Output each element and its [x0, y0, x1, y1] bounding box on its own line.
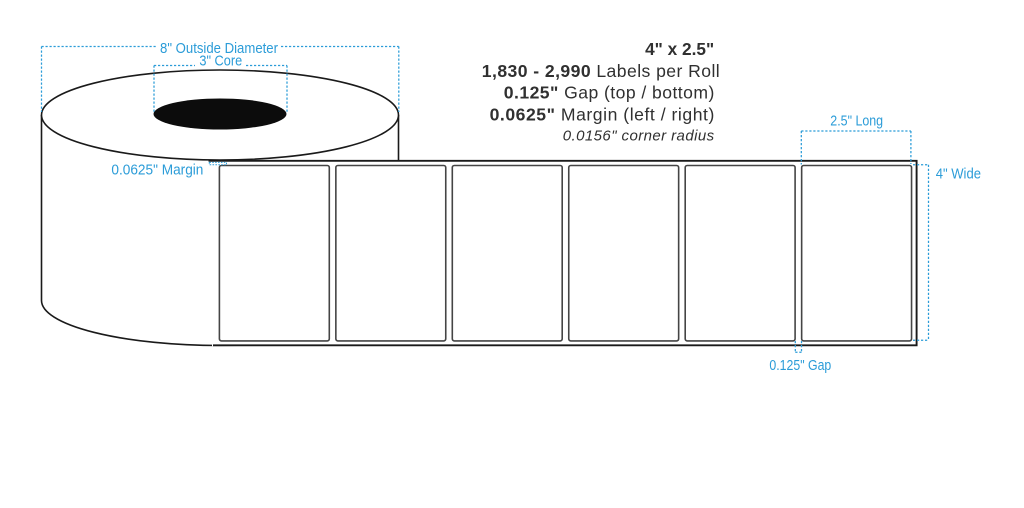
- svg-text:0.125" Gap: 0.125" Gap: [769, 358, 831, 374]
- svg-text:0.0625" Margin (left / right): 0.0625" Margin (left / right): [490, 105, 715, 125]
- svg-text:4" Wide: 4" Wide: [936, 167, 981, 183]
- svg-text:4" x 2.5": 4" x 2.5": [645, 39, 714, 59]
- svg-text:0.0625" Margin: 0.0625" Margin: [111, 162, 203, 178]
- svg-text:0.125" Gap (top / bottom): 0.125" Gap (top / bottom): [504, 83, 715, 103]
- svg-text:2.5" Long: 2.5" Long: [830, 113, 883, 129]
- svg-text:1,830 - 2,990 Labels per Roll: 1,830 - 2,990 Labels per Roll: [482, 61, 720, 81]
- svg-text:3" Core: 3" Core: [199, 54, 242, 70]
- svg-text:0.0156" corner radius: 0.0156" corner radius: [563, 128, 715, 145]
